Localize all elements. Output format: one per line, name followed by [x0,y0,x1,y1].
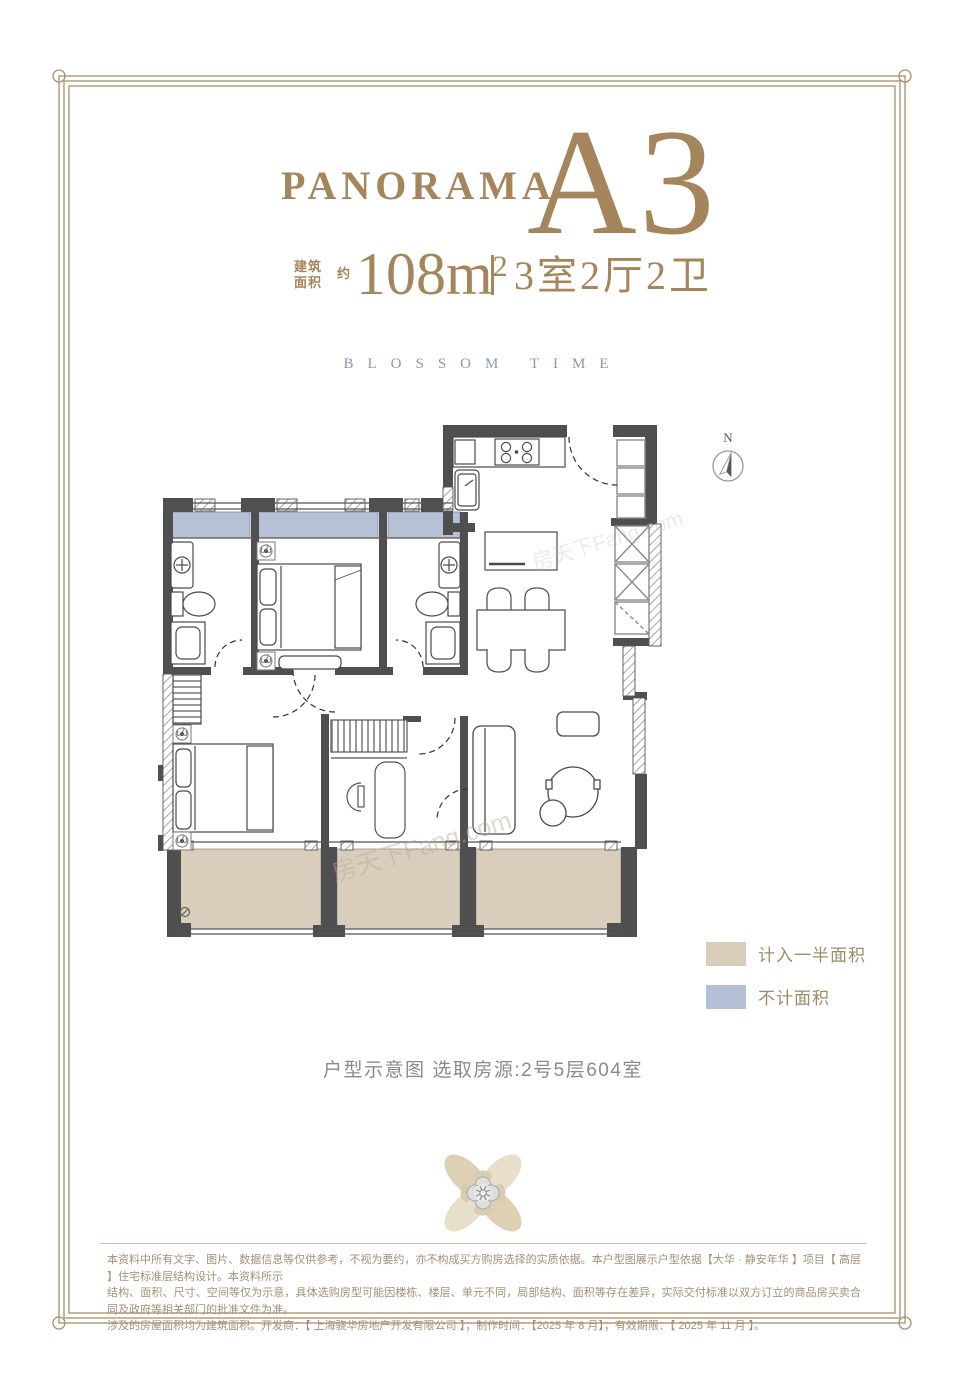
disclaimer-line: 结构、面积、尺寸、空间等仅为示意，具体选购房型可能因楼栋、楼层、单元不同，局部结… [107,1285,861,1318]
area-prefix-top: 建筑 [294,259,322,275]
area-approx: 约 [337,263,350,282]
area-prefix: 建筑 面积 [294,259,322,292]
flower-ornament [428,1138,538,1248]
area-rooms: 3室2厅2卫 [514,256,712,296]
brand-title: PANORAMA [281,166,556,206]
legend-item-half-area: 计入一半面积 [706,941,866,966]
dining-table [477,610,565,650]
disclaimer-line: 涉及的房屋面积均为建筑面积。开发商：【 上海骁华房地产开发有限公司 】；制作时间… [107,1318,861,1335]
legend-swatch-half-area [706,942,746,966]
bench [279,656,341,669]
floor-lamp [540,800,566,826]
unit-title: A3 [527,106,717,258]
study [331,720,407,838]
disclaimer: 本资料中所有文字、图片、数据信息等仅供参考，不视为要约，亦不构成买方购房选择的实… [107,1252,861,1335]
disclaimer-line: 本资料中所有文字、图片、数据信息等仅供参考，不视为要约，亦不构成买方购房选择的实… [107,1252,861,1285]
legend-label: 不计面积 [758,984,830,1009]
entry-door-arc [569,437,617,485]
floor-plan-poster: PANORAMA A3 建筑 面积 约 108m2 3室2厅2卫 BLOSSOM… [0,0,966,1400]
legend-label: 计入一半面积 [758,941,866,966]
desk [375,762,405,838]
toilet-tank [171,592,183,616]
compass-needle [720,451,737,477]
bathroom-1 [171,542,215,664]
compass-n-label: N [723,430,733,445]
area-value: 108m2 [356,244,508,304]
subtitle: BLOSSOM TIME [0,356,966,373]
toilet [183,592,215,616]
master-bedroom [257,542,361,670]
caption: 户型示意图 选取房源:2号5层604室 [0,1055,966,1082]
divider-line [100,1243,866,1244]
coffee-table [557,712,599,736]
toilet-tank [448,592,460,616]
area-sup: 2 [493,250,508,283]
legend-swatch-excluded [706,985,746,1009]
zone-excluded-bay-windows [170,512,460,538]
wardrobe [331,720,407,752]
area-prefix-bottom: 面积 [294,275,322,291]
toilet [416,592,448,616]
area-divider [491,255,494,295]
floor-plan: 房天下Fang.com 房天下Fang.com [155,420,715,1020]
dining-area [477,588,565,672]
bathroom-2 [416,542,460,664]
wardrobe [173,674,201,724]
legend-item-excluded: 不计面积 [706,984,830,1009]
